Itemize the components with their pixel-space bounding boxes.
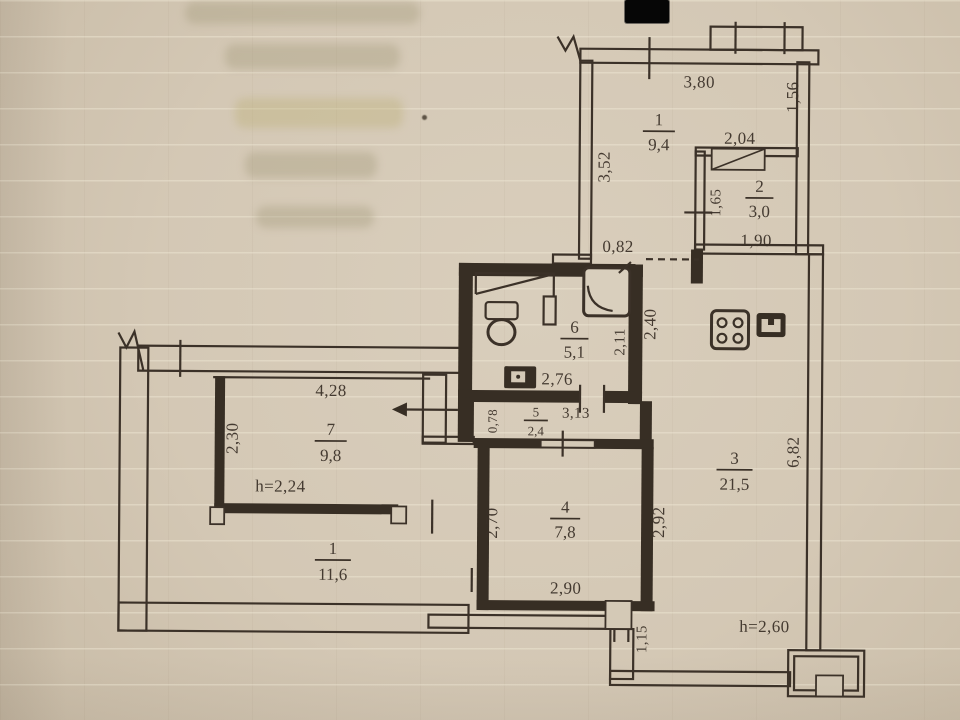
outer-walls (116, 33, 869, 696)
wall-break-symbol (557, 37, 580, 61)
dim-2-40: 2,40 (640, 308, 659, 339)
svg-text:5,1: 5,1 (564, 343, 585, 362)
svg-text:21,5: 21,5 (719, 475, 749, 494)
dim-3-80: 3,80 (683, 72, 714, 91)
entrance-arrow-icon (392, 402, 458, 416)
door-opening (541, 440, 595, 448)
svg-text:4: 4 (561, 498, 570, 517)
svg-text:6: 6 (570, 318, 579, 337)
dim-3-52: 3,52 (595, 151, 614, 182)
dim-2-90: 2,90 (550, 578, 581, 597)
stove-icon (711, 311, 748, 349)
wall-junction-block (605, 601, 631, 629)
svg-text:2: 2 (755, 177, 764, 196)
room-1-label: 1 9,4 (643, 110, 675, 154)
washing-machine-icon (504, 366, 536, 388)
room-7-label: 7 9,8 (315, 420, 347, 465)
svg-text:1: 1 (655, 110, 664, 129)
svg-text:11,6: 11,6 (318, 565, 347, 584)
dim-6-82: 6,82 (784, 436, 803, 467)
dim-1-65: 1,65 (708, 189, 724, 217)
room-5-label: 5 2,4 (524, 404, 548, 438)
room-6-label: 6 5,1 (560, 318, 588, 362)
wall-break-symbol (118, 331, 143, 369)
svg-text:7,8: 7,8 (554, 523, 575, 542)
dim-1-56: 1,56 (783, 81, 802, 112)
openings (178, 18, 802, 643)
room-4-label: 4 7,8 (550, 497, 580, 541)
svg-text:5: 5 (533, 404, 540, 419)
vent-shaft-icon (712, 149, 765, 170)
svg-text:9,4: 9,4 (648, 135, 670, 154)
window (710, 27, 802, 51)
dim-3-13: 3,13 (562, 406, 590, 422)
height-room3: h=2,60 (739, 617, 789, 636)
kitchen-sink-icon (756, 313, 785, 337)
dim-2-76: 2,76 (541, 369, 572, 388)
bottom-right-step (788, 650, 864, 697)
dim-2-11: 2,11 (612, 328, 628, 355)
dim-2-04: 2,04 (724, 129, 756, 148)
wall-end-cap (210, 507, 224, 524)
scanned-floor-plan-page: 3,80 2,04 1,90 0,82 2,76 3,13 4,28 2,90 … (0, 0, 960, 720)
room-3-label: 3 21,5 (716, 449, 752, 494)
svg-text:3,0: 3,0 (749, 202, 770, 221)
height-room7: h=2,24 (255, 476, 305, 495)
svg-text:3: 3 (730, 449, 739, 468)
floor-plan-drawing: 3,80 2,04 1,90 0,82 2,76 3,13 4,28 2,90 … (0, 0, 960, 720)
bathtub-icon (476, 273, 556, 325)
svg-text:1: 1 (329, 539, 338, 558)
dim-4-28: 4,28 (315, 381, 346, 400)
dim-1-90: 1,90 (740, 231, 771, 250)
shower-icon (584, 262, 631, 316)
svg-text:9,8: 9,8 (320, 446, 341, 465)
dim-2-92: 2,92 (649, 507, 668, 538)
svg-text:2,4: 2,4 (528, 423, 545, 438)
room-1b-label: 1 11,6 (315, 539, 351, 584)
toilet-icon (485, 302, 517, 345)
room-2-label: 2 3,0 (745, 177, 773, 221)
wall-end-cap (391, 506, 406, 523)
svg-text:7: 7 (326, 420, 335, 439)
dim-1-15: 1,15 (634, 625, 650, 653)
dim-0-82: 0,82 (602, 237, 633, 256)
dim-2-70: 2,70 (482, 507, 501, 538)
dim-0-78: 0,78 (485, 409, 500, 433)
dim-2-30: 2,30 (223, 423, 242, 454)
